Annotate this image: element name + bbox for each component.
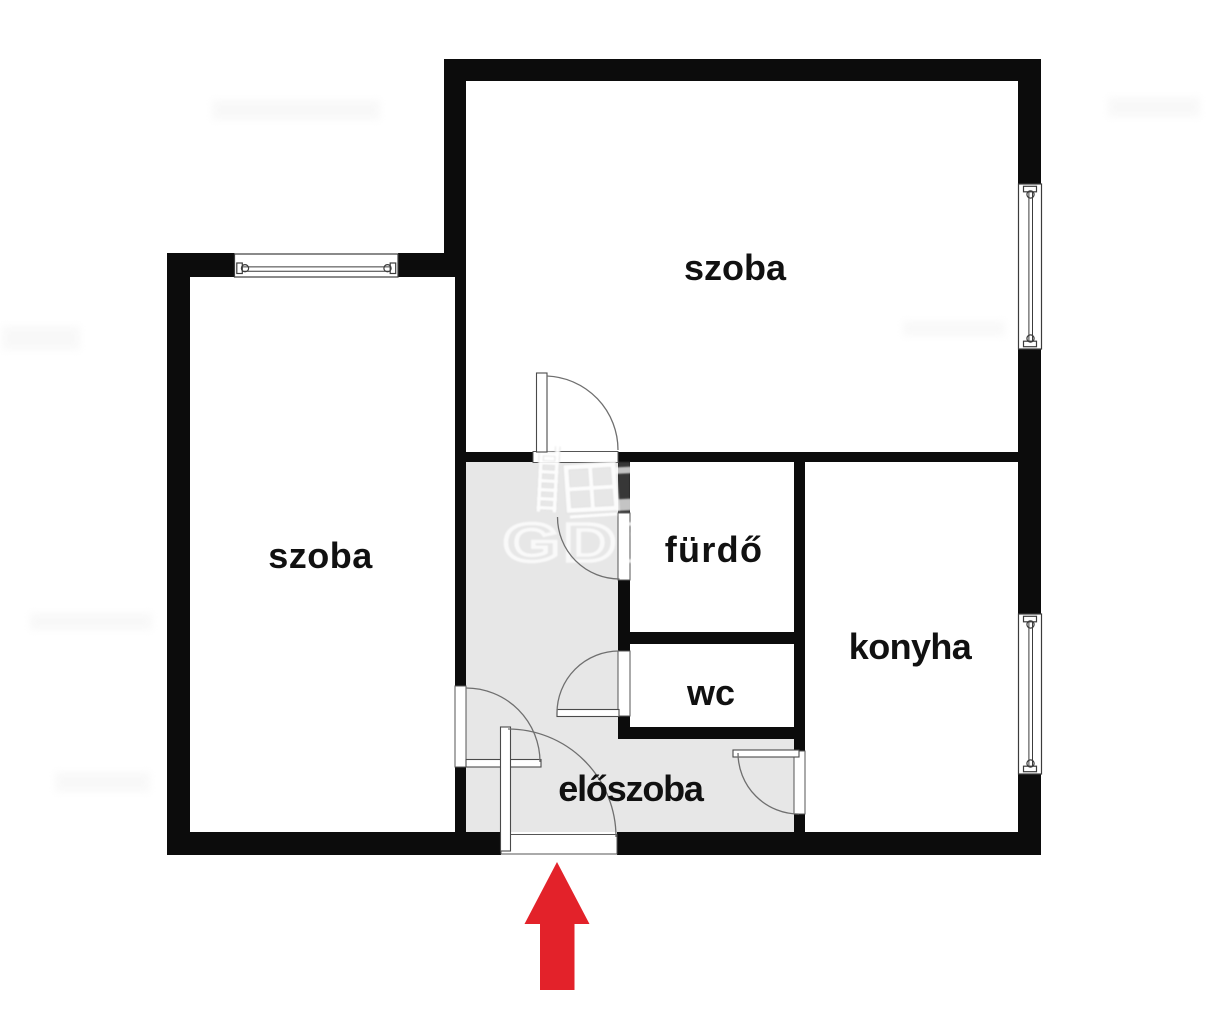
svg-text:előszoba: előszoba — [558, 768, 705, 809]
svg-text:fürdő: fürdő — [665, 529, 763, 570]
svg-text:konyha: konyha — [849, 626, 973, 667]
svg-text:szoba: szoba — [684, 247, 787, 288]
svg-text:GDN: GDN — [503, 512, 676, 573]
svg-text:wc: wc — [686, 672, 735, 713]
svg-text:szoba: szoba — [268, 535, 373, 576]
